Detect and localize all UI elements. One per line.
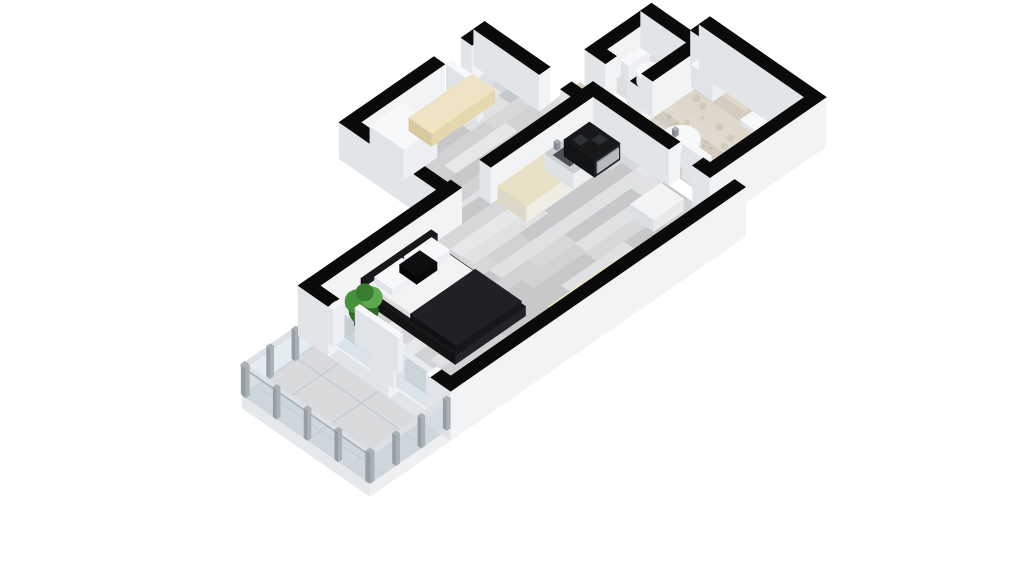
floorplan-3d-render [0,0,1024,576]
floorplan-canvas [0,0,1024,576]
basin-tap [672,127,678,138]
door-frame-post-1 [329,299,345,346]
kitchen-tap [554,139,560,150]
